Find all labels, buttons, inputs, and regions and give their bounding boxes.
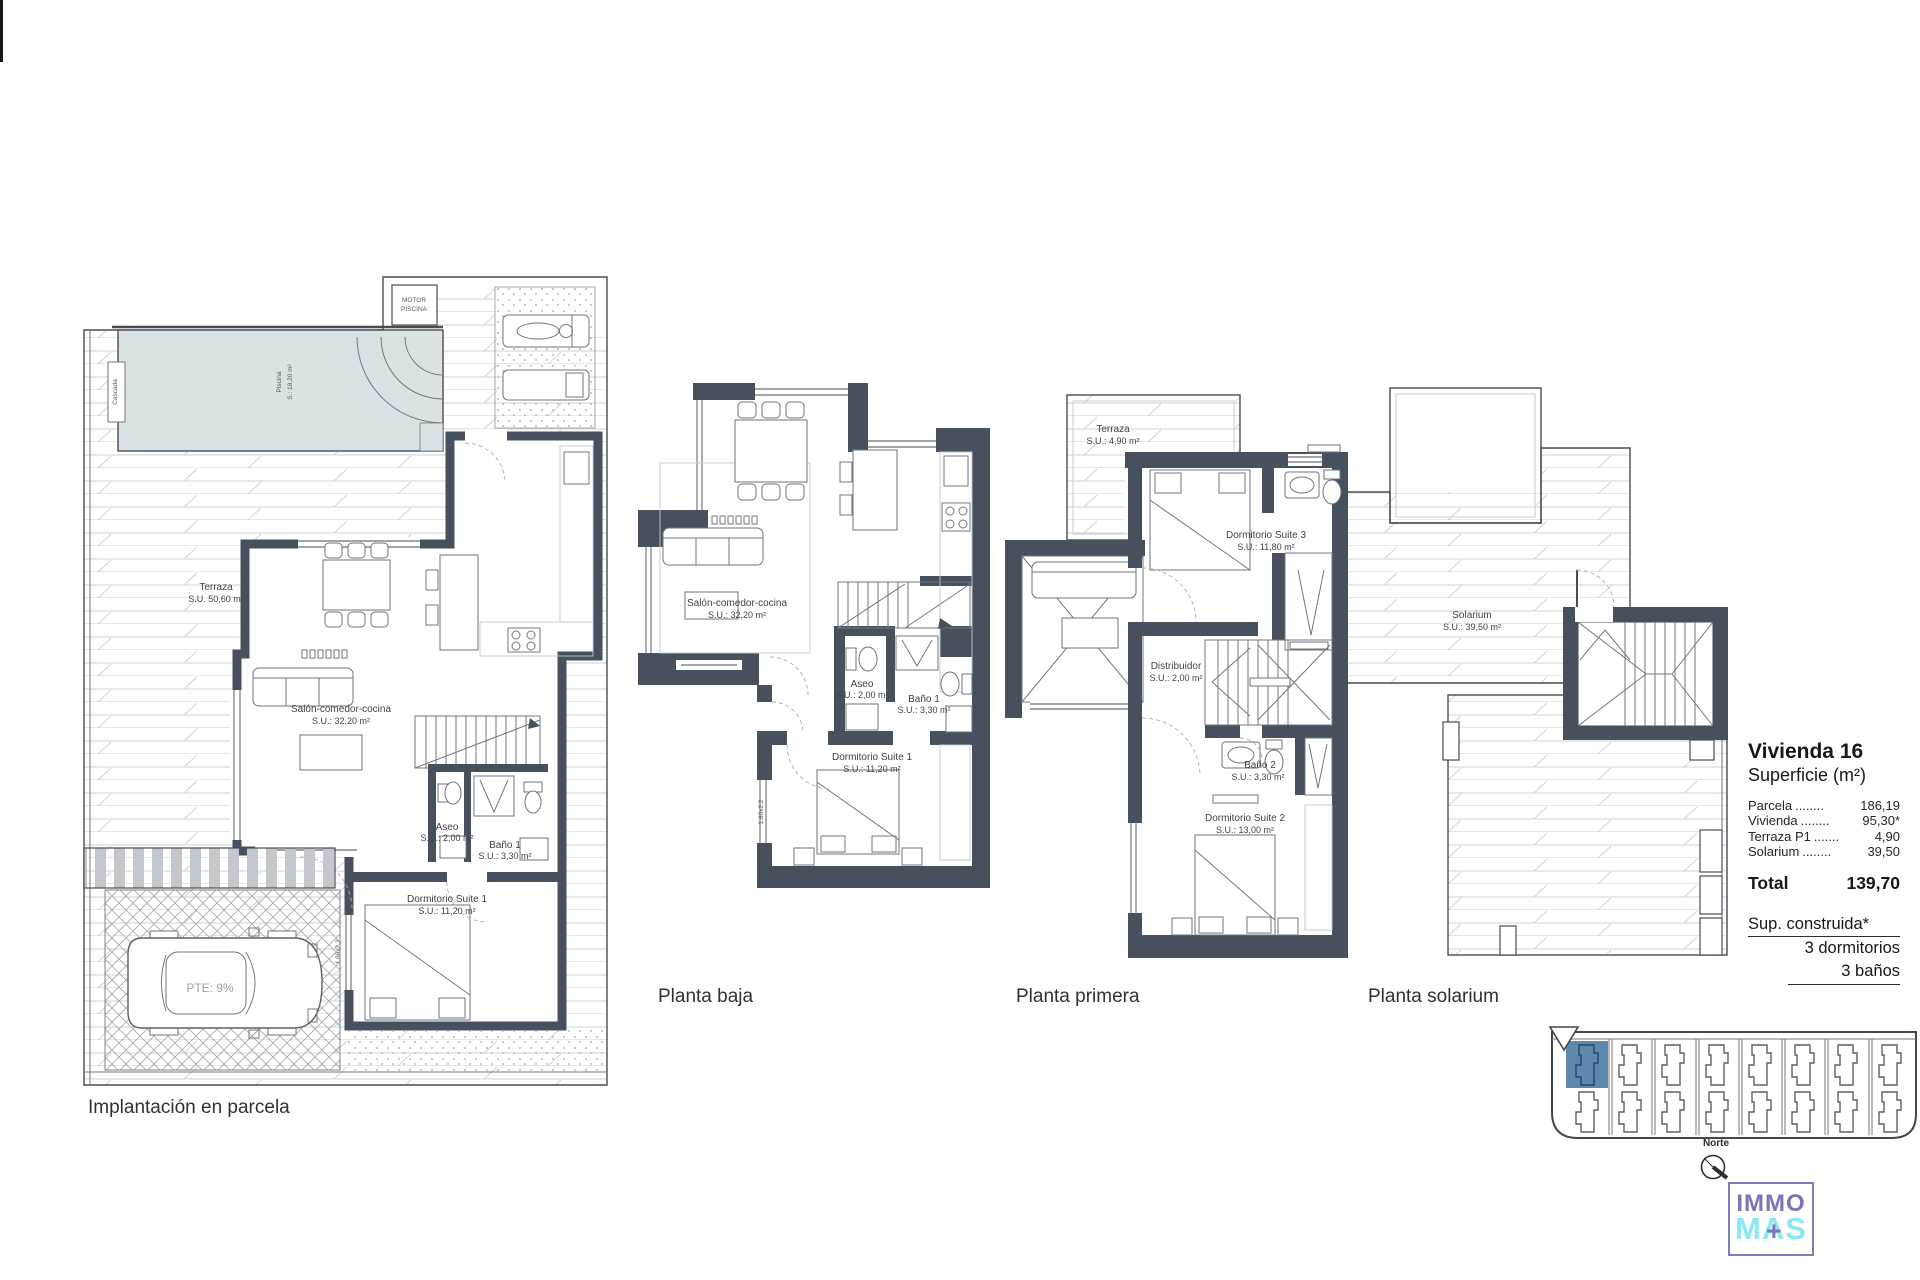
dining-table [735, 402, 807, 500]
floorplan-sheet: Piscina S.: 18,20 m² Cascada MOTOR PISCI… [0, 0, 1920, 1280]
towel-rail [1308, 445, 1340, 452]
dining-table [323, 543, 390, 627]
motor-label-1: MOTOR [402, 297, 426, 304]
bathrooms-count: 3 baños [1788, 960, 1900, 985]
dorm1-area-label: S.U.: 11,20 m² [843, 764, 900, 774]
surface-row-vivienda: Vivienda........95,30* [1748, 813, 1900, 828]
sofa [1032, 562, 1136, 598]
toilet-icon [941, 672, 972, 696]
entry-steps [84, 848, 335, 888]
double-height-void [1005, 540, 1145, 718]
caption-implantacion: Implantación en parcela [88, 1097, 290, 1119]
toilet-icon [524, 782, 542, 813]
surface-row-terraza: Terraza P1.......4,90 [1748, 829, 1900, 844]
salon-area-label: S.U.: 32,20 m² [312, 716, 370, 726]
dorm1-name-label: Dormitorio Suite 1 [407, 894, 487, 905]
dorm2-area-label: S.U.: 13,00 m² [1216, 825, 1274, 835]
dorm3-area-label: S.U.: 11,80 m² [1237, 542, 1294, 552]
bano2-name-label: Baño 2 [1244, 760, 1276, 771]
north-label: Norte [1686, 1138, 1746, 1149]
terraza-area-label: S.U.: 4,90 m² [1086, 436, 1139, 446]
bedrooms-count: 3 dormitorios [1748, 937, 1900, 960]
dorm1-name-label: Dormitorio Suite 1 [832, 752, 912, 763]
dorm1-area-label: S.U.: 11,20 m² [418, 906, 475, 916]
dorm3-name-label: Dormitorio Suite 3 [1226, 530, 1306, 541]
pool-motor-box: MOTOR PISCINA [392, 285, 437, 325]
highlighted-unit[interactable] [1566, 1041, 1608, 1088]
toilet-icon [1323, 470, 1341, 504]
bano1-name-label: Baño 1 [489, 840, 521, 851]
waterfall: Cascada [108, 362, 125, 422]
coffee-table [300, 735, 362, 770]
gravel-strip [345, 1030, 607, 1072]
salon-name-label: Salón-comedor-cocina [291, 704, 391, 715]
window-dim-label: 1.80x2.2 [758, 799, 765, 824]
plan-planta-baja: 1.80x2.2 [638, 383, 990, 888]
bano1-area-label: S.U.: 3,30 m² [897, 705, 950, 715]
terraza-name-label: Terraza [199, 582, 233, 593]
surface-row-parcela: Parcela........186,19 [1748, 798, 1900, 813]
terraza-area-label: S.U. 50,60 m² [188, 594, 244, 604]
caption-planta-baja: Planta baja [658, 986, 753, 1008]
distribuidor-area-label: S.U.: 2,00 m² [1149, 673, 1202, 683]
caption-planta-primera: Planta primera [1016, 986, 1140, 1008]
aseo-area-label: S.U.: 2,00 m² [420, 833, 473, 843]
surface-info-panel: Vivienda 16 Superficie (m²) Parcela.....… [1748, 740, 1900, 985]
coffee-table [1062, 618, 1118, 648]
sunbathing-area [495, 287, 595, 428]
surface-total: Total139,70 [1748, 873, 1900, 894]
north-compass: Norte [1686, 1138, 1746, 1188]
pool: Piscina S.: 18,20 m² [112, 327, 443, 451]
motor-label-2: PISCINA [401, 306, 428, 313]
surface-row-solarium: Solarium........39,50 [1748, 844, 1900, 859]
dorm2-name-label: Dormitorio Suite 2 [1205, 813, 1285, 824]
bano2-area-label: S.U.: 3,30 m² [1231, 772, 1284, 782]
terraza-name-label: Terraza [1096, 424, 1130, 435]
immo-mas-logo[interactable]: IMMO MAS + [1728, 1182, 1814, 1256]
pool-area-label: S.: 18,20 m² [287, 363, 294, 399]
plan-planta-primera: Terraza S.U.: 4,90 m² [1005, 395, 1348, 958]
solarium-name-label: Solarium [1452, 610, 1491, 621]
toilet-icon [846, 647, 877, 671]
driveway: PTE: 9% [105, 890, 340, 1070]
unit-title: Vivienda 16 [1748, 740, 1900, 764]
distribuidor-name-label: Distribuidor [1151, 661, 1202, 672]
plan-implantacion-parcela: Piscina S.: 18,20 m² Cascada MOTOR PISCI… [84, 277, 607, 1085]
aseo-area-label: S.U.: 2,00 m² [835, 690, 888, 700]
aseo-name-label: Aseo [851, 679, 874, 690]
bano1-name-label: Baño 1 [908, 694, 940, 705]
built-surface-note: Sup. construida* [1748, 915, 1900, 937]
slope-label: PTE: 9% [186, 981, 234, 995]
bed [1150, 470, 1250, 570]
sink-icon [1285, 472, 1319, 498]
bed [365, 905, 470, 1020]
surface-subtitle: Superficie (m²) [1748, 764, 1900, 786]
caption-planta-solarium: Planta solarium [1368, 986, 1499, 1008]
toilet-icon [438, 782, 461, 804]
logo-plus-icon: + [1766, 1216, 1782, 1247]
plan-planta-solarium: Solarium S.U.: 39,50 m² [1347, 388, 1728, 955]
sofa [663, 528, 763, 565]
salon-name-label: Salón-comedor-cocina [687, 598, 787, 609]
plans-drawing: Piscina S.: 18,20 m² Cascada MOTOR PISCI… [0, 0, 1920, 1280]
salon-area-label: S.U.: 32,20 m² [708, 610, 766, 620]
shelf [1213, 795, 1258, 803]
aseo-name-label: Aseo [436, 822, 459, 833]
cascada-label: Cascada [112, 379, 119, 405]
site-location-strip [1550, 1027, 1916, 1138]
sofa [253, 668, 353, 706]
solarium-area-label: S.U.: 39,50 m² [1443, 622, 1501, 632]
bano1-area-label: S.U.: 3,30 m² [478, 851, 531, 861]
pool-name-label: Piscina [276, 371, 283, 392]
sink-icon [846, 704, 878, 730]
